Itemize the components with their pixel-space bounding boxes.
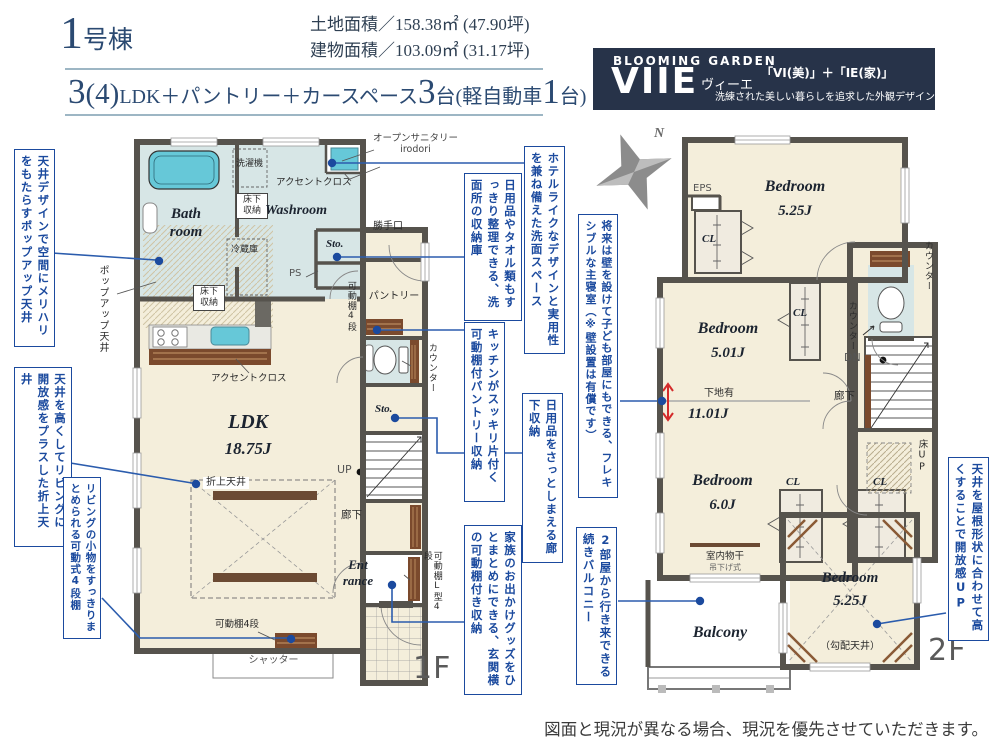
callout-wash-space: ホテルライクなデザインと実用性を兼ね備えた洗面スペース bbox=[524, 146, 565, 354]
eps-shaft bbox=[692, 196, 720, 210]
brand-logo: BLOOMING GARDEN VIIE ヴィーエ 「VI(美)」＋「IE(家)… bbox=[593, 48, 935, 110]
callout-popup-ceiling: 天井デザインで空間にメリハリをもたらすポップアップ天井 bbox=[14, 149, 55, 347]
rooms-count: 3 bbox=[68, 72, 86, 111]
bedroom4-size: 5.25J bbox=[833, 593, 867, 609]
popup-ceiling-label: ポップアップ天井 bbox=[97, 265, 108, 355]
shutter-label: シャッター bbox=[221, 655, 326, 667]
balcony-label: Balcony bbox=[665, 623, 775, 642]
open-sanitary-label: オープンサニタリー irodori bbox=[363, 133, 468, 156]
callout-high-ceiling: 天井を屋根形状に合わせて高くすることで開放感UP bbox=[948, 457, 989, 641]
logo-name: VIIE bbox=[611, 64, 698, 100]
plan-summary: 3(4)LDK＋パントリー＋カースペース3台(軽自動車1台) bbox=[68, 72, 586, 112]
building-number: 1 bbox=[60, 7, 83, 58]
callout-entrance-storage: 家族のお出かけグッズをひとまとめにできる、玄関横の可動棚付き収納 bbox=[464, 525, 522, 695]
kitchen-return bbox=[255, 299, 271, 327]
shitaji-label: 下地有 bbox=[704, 388, 734, 400]
building-title: 1号棟 bbox=[60, 10, 133, 56]
cars-unit: 台 bbox=[436, 86, 456, 108]
balcony-rail bbox=[648, 667, 790, 693]
callout-movable-shelf: リビングの小物をすっきりまとめられる可動式4段棚 bbox=[63, 477, 101, 639]
laundry-label: 室内物干 bbox=[695, 551, 755, 562]
plan-desc: LDK＋パントリー＋カースペース bbox=[119, 86, 418, 108]
laundry-bar bbox=[690, 543, 760, 547]
toilet2-icon bbox=[878, 287, 904, 332]
accent-cloth-a: アクセントクロス bbox=[276, 177, 352, 188]
header-rule-top bbox=[65, 68, 543, 70]
shelf-4a-label: 可動棚4段 bbox=[345, 281, 355, 341]
kei-post: 台) bbox=[560, 86, 587, 108]
accent-cloth-b: アクセントクロス bbox=[211, 373, 287, 384]
bedroom1-name: Bedroom bbox=[765, 178, 825, 195]
bedroom2-size: 5.01J bbox=[711, 345, 745, 361]
cl2-label: CL bbox=[793, 307, 807, 320]
cl4-label: CL bbox=[873, 476, 887, 489]
combined-size-label: 11.01J bbox=[688, 405, 728, 423]
toilet1-basin bbox=[365, 345, 373, 371]
counter-a-label: カウンター bbox=[922, 241, 932, 297]
flyer-page: 1号棟 土地面積／158.38㎡ (47.90坪) 建物面積／103.09㎡ (… bbox=[0, 0, 1000, 750]
floor-up-label: 床UP bbox=[916, 439, 926, 481]
callout-wash-storage: 日用品やタオル類もすっきり整理できる、洗面所の収納庫 bbox=[464, 173, 522, 321]
bedroom3-label: Bedroom6.0J bbox=[665, 469, 780, 517]
toilet1-counter bbox=[410, 340, 419, 383]
bedroom1-label: Bedroom5.25J bbox=[730, 175, 860, 223]
hallway1-label: 廊下 bbox=[341, 509, 362, 522]
counter-b-label: カウンター bbox=[846, 301, 856, 351]
pantry-shelf bbox=[365, 319, 403, 335]
callout-hall-storage: 日用品をさっとしまえる廊下収納 bbox=[522, 393, 563, 563]
stairs-down bbox=[865, 337, 935, 430]
ldk-name: LDK bbox=[228, 411, 268, 433]
area-info: 土地面積／158.38㎡ (47.90坪) 建物面積／103.09㎡ (31.1… bbox=[310, 12, 530, 65]
bedroom3-size: 6.0J bbox=[709, 497, 735, 513]
up-label: UP bbox=[337, 463, 352, 476]
floor1-label: 1F bbox=[413, 651, 451, 687]
underfloor-storage-b: 床下 収納 bbox=[193, 285, 225, 311]
entrance-label: Ent rance bbox=[335, 557, 381, 588]
sto-b-label: Sto. bbox=[375, 403, 392, 416]
bedroom4-label: Bedroom5.25J bbox=[790, 567, 910, 612]
callout-balcony: 2部屋から行き来できる続きバルコニー bbox=[576, 527, 617, 685]
fridge-label: 冷蔵庫 bbox=[231, 245, 267, 256]
cars-count: 3 bbox=[418, 72, 436, 111]
cl1-label: CL bbox=[702, 233, 716, 246]
bedroom4-name: Bedroom bbox=[822, 570, 879, 586]
pantry-label: パントリー bbox=[365, 291, 423, 303]
sanitary-sink-icon bbox=[331, 148, 358, 170]
floorplan-1f: Bath room 洗濯機 床下 収納 Washroom アクセントクロス オー… bbox=[113, 133, 443, 695]
entrance-shelf-L bbox=[408, 557, 420, 601]
logo-formula: 「VI(美)」＋「IE(家)」 bbox=[761, 64, 893, 81]
sloped-ceiling-label: （勾配天井） bbox=[805, 641, 895, 653]
bedroom2-label: Bedroom5.01J bbox=[668, 317, 788, 365]
floorplan-2f: Bedroom5.25J EPS CL カウンター カウンター DN Bedro… bbox=[640, 133, 940, 708]
eps-label: EPS bbox=[693, 183, 712, 195]
room-bath-label: Bath room bbox=[151, 205, 221, 241]
shelf-L-label: 可動棚L型4段 bbox=[421, 551, 441, 613]
footer-note: 図面と現況が異なる場合、現況を優先させていただきます。 bbox=[544, 716, 988, 740]
stairs-up bbox=[363, 433, 425, 501]
land-area: 土地面積／158.38㎡ (47.90坪) bbox=[310, 12, 530, 38]
building-suffix: 号棟 bbox=[83, 27, 133, 54]
ldk-size: 18.75J bbox=[225, 439, 272, 458]
raised-ceiling-label: 折上天井 bbox=[203, 477, 249, 489]
underfloor-storage-a: 床下 収納 bbox=[236, 193, 268, 219]
callout-flexible-bedroom: 将来は壁を設けて子ども部屋にもできる、フレキシブルな主寝室（※壁設置は有償です） bbox=[578, 214, 618, 498]
sto-a-label: Sto. bbox=[326, 238, 343, 251]
ldk-shelf bbox=[275, 633, 317, 649]
rooms-paren: (4) bbox=[86, 78, 120, 110]
ldk-label: LDK18.75J bbox=[193, 409, 303, 461]
bedroom1-size: 5.25J bbox=[778, 203, 812, 219]
laundry-sub-label: 吊下げ式 bbox=[700, 563, 750, 573]
hallway2-label: 廊下 bbox=[834, 390, 855, 403]
dn-label: DN bbox=[844, 351, 861, 364]
hall-shelf bbox=[410, 505, 421, 549]
bedroom2-name: Bedroom bbox=[698, 320, 758, 337]
shelf-4b-label: 可動棚4段 bbox=[215, 619, 259, 630]
ps-label: PS bbox=[289, 268, 301, 280]
washer-label: 洗濯機 bbox=[236, 159, 266, 170]
cl3-label: CL bbox=[786, 476, 800, 489]
kei-count: 1 bbox=[542, 72, 560, 111]
callout-pantry-storage: キッチンがスッキリ片付く可動棚付パントリー収納 bbox=[464, 322, 505, 502]
logo-tagline: 洗練された美しい暮らしを追求した外観デザイン bbox=[715, 88, 935, 103]
bathtub-icon bbox=[149, 151, 219, 189]
front-door bbox=[379, 601, 413, 608]
back-door-label: 勝手口 bbox=[373, 221, 403, 233]
room-washroom-label: Washroom bbox=[265, 203, 327, 220]
header-rule-bottom bbox=[65, 114, 543, 116]
counter1-label: カウンター bbox=[426, 343, 436, 395]
kitchen-cabinet bbox=[149, 349, 271, 365]
building-area: 建物面積／103.09㎡ (31.17坪) bbox=[310, 38, 530, 64]
kitchen-sink-icon bbox=[211, 327, 249, 345]
bedroom3-name: Bedroom bbox=[692, 472, 752, 489]
kei-pre: (軽自動車 bbox=[456, 86, 543, 108]
